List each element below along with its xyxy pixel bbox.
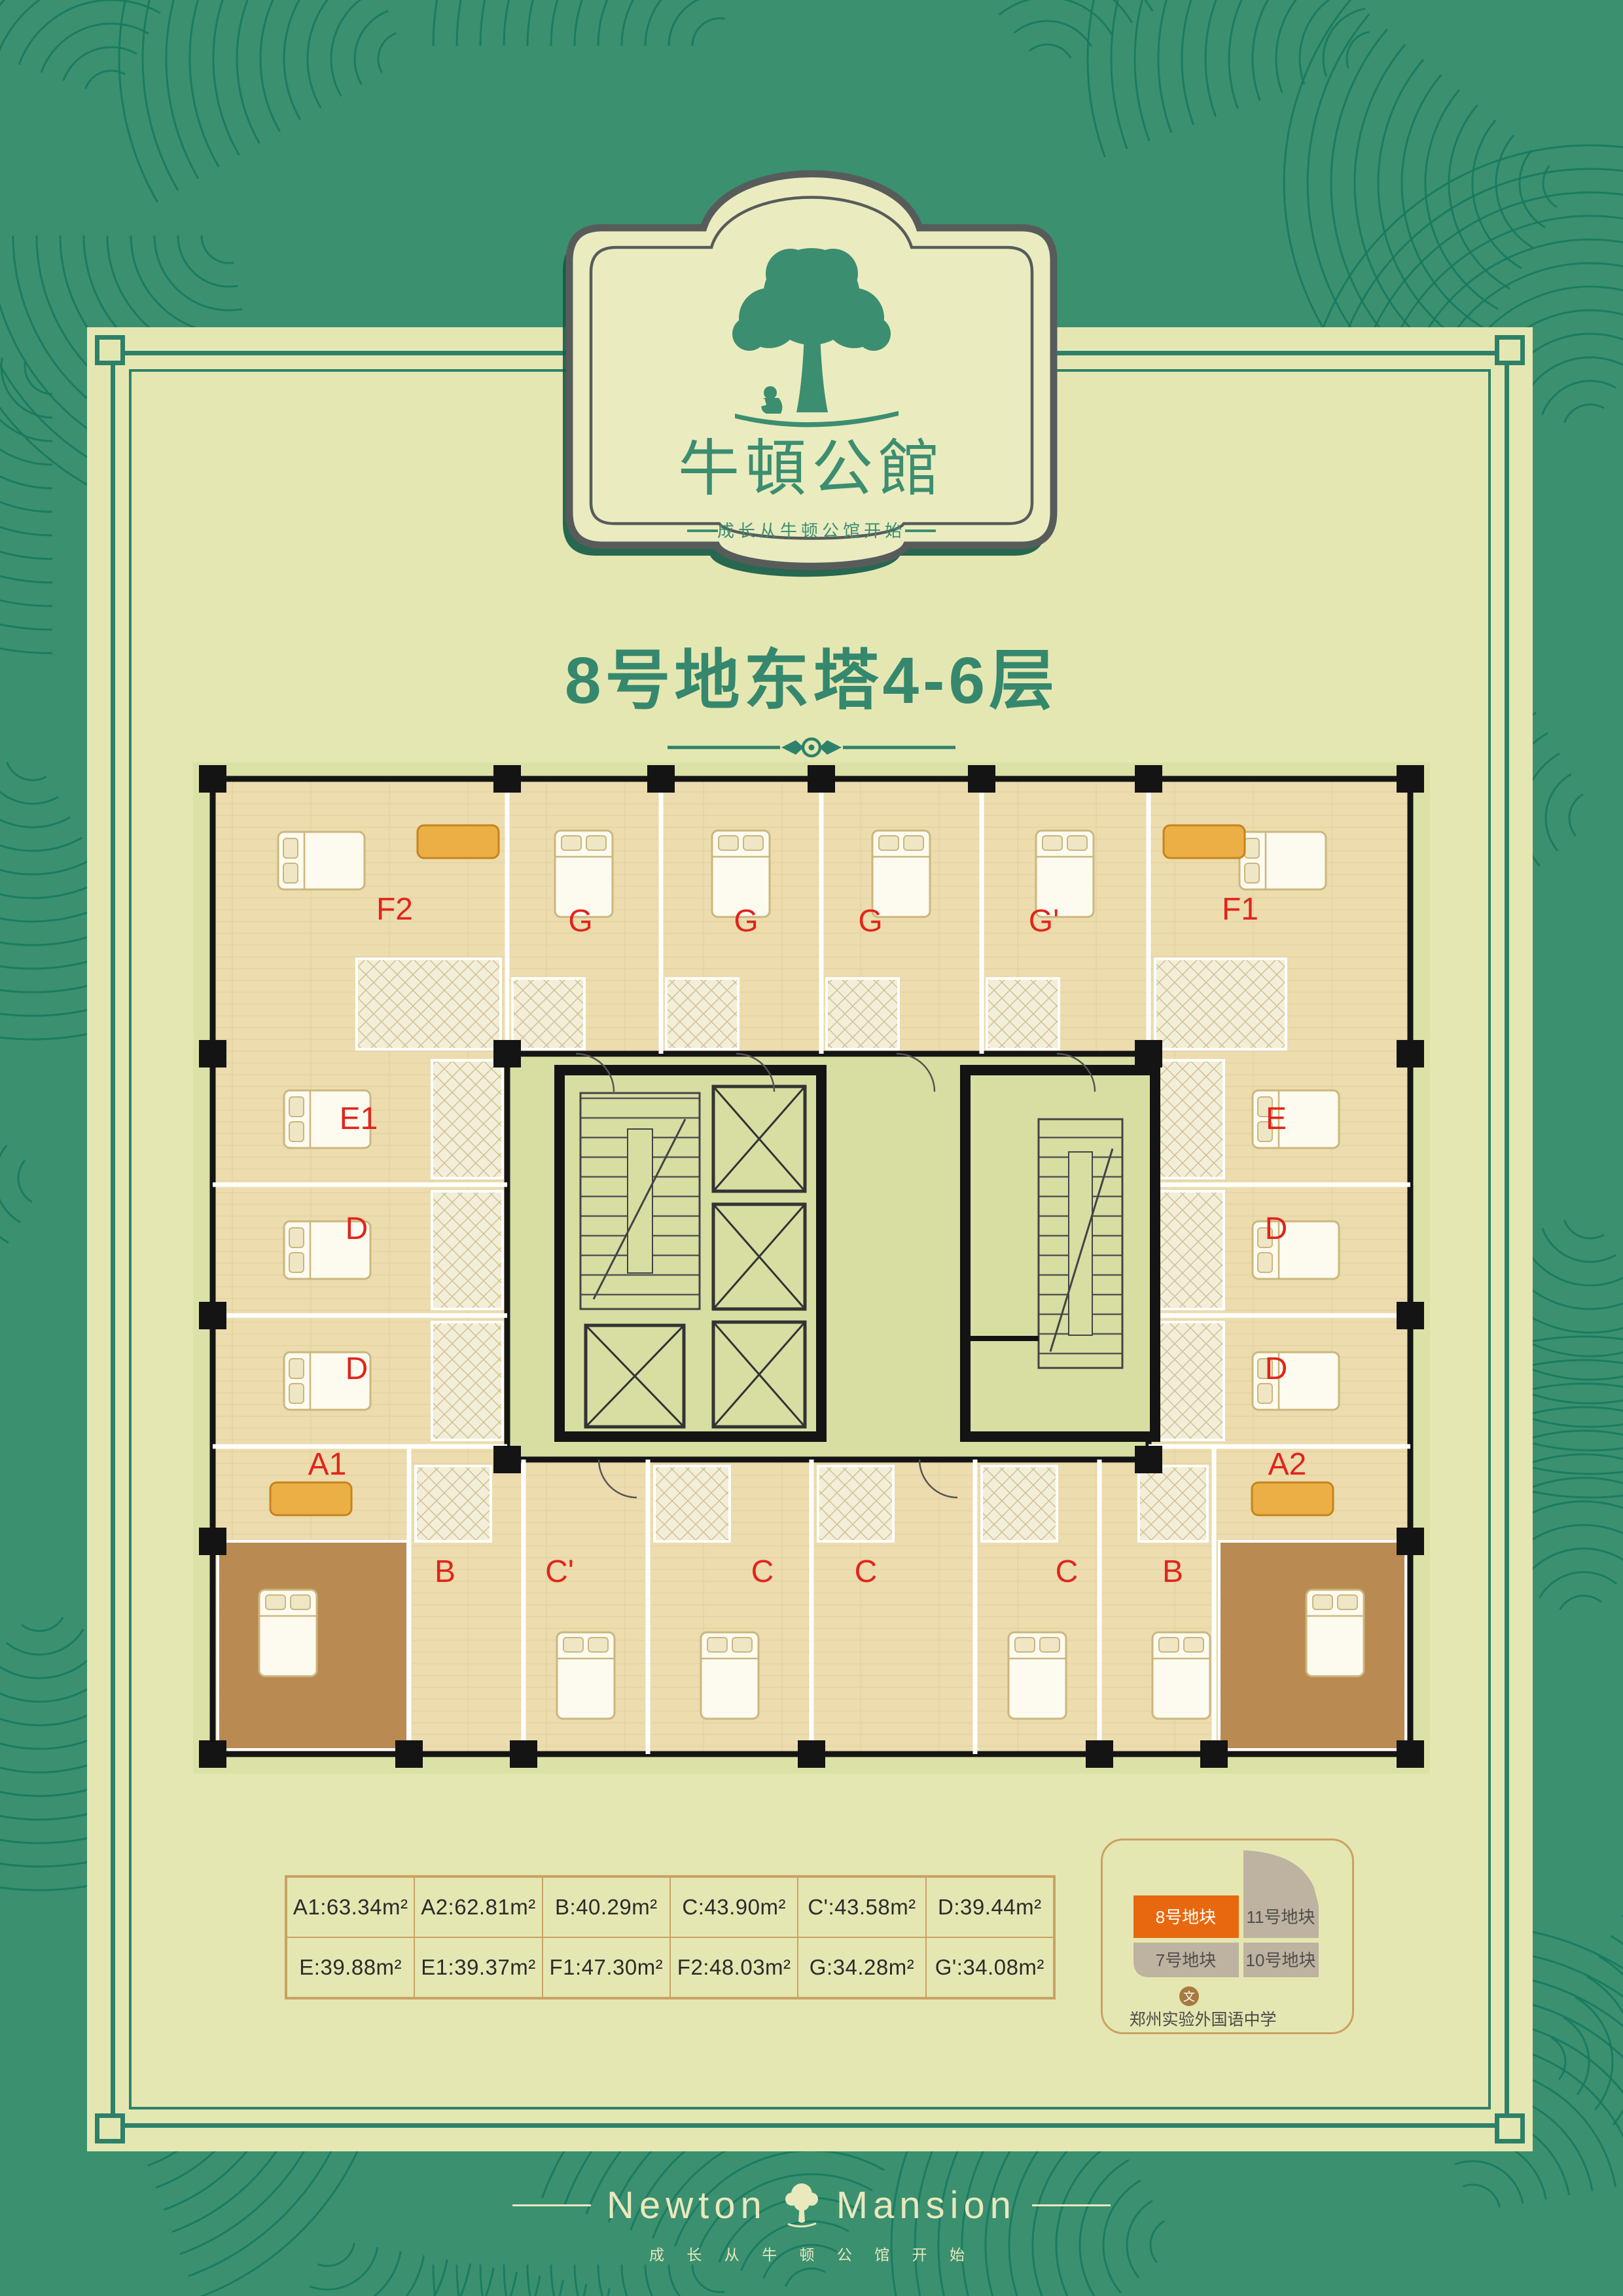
plot-10-label: 10号地块 <box>1246 1950 1316 1970</box>
structural-column <box>199 765 226 793</box>
unit-label: D <box>346 1211 368 1246</box>
unit-label: E <box>1266 1102 1287 1136</box>
footer-tagline: 成 长 从 牛 顿 公 馆 开 始 <box>649 2242 974 2265</box>
structural-column <box>199 1528 226 1555</box>
unit-label: D <box>1265 1211 1288 1246</box>
area-table-cell: F2:48.03m² <box>670 1937 798 1998</box>
school-label: 郑州实验外国语中学 <box>1129 2011 1276 2029</box>
unit-label: C <box>855 1554 878 1589</box>
area-table-cell: E:39.88m² <box>287 1937 414 1998</box>
structural-column <box>510 1740 537 1768</box>
unit-label: E1 <box>340 1102 378 1136</box>
unit-label: B <box>435 1554 455 1589</box>
footer: Newton Mansion 成 长 从 牛 顿 公 馆 开 始 <box>0 2179 1623 2265</box>
unit-label: C <box>1056 1554 1079 1589</box>
area-table-cell: D:39.44m² <box>926 1877 1054 1937</box>
plot-8-label: 8号地块 <box>1156 1907 1216 1927</box>
bed-icon <box>1306 1590 1364 1676</box>
unit-label: A1 <box>308 1447 347 1482</box>
structural-column <box>968 765 995 793</box>
leaf-fan <box>433 2265 770 2296</box>
page-title: 8号地东塔4-6层 <box>0 627 1623 722</box>
bed-icon <box>1240 832 1326 889</box>
brand-badge: 牛頓公館 成长从牛顿公馆开始 <box>540 149 1083 581</box>
school-icon-char: 文 <box>1183 1990 1195 2003</box>
area-table-cell: E1:39.37m² <box>414 1937 542 1998</box>
sofa-icon <box>1252 1482 1333 1515</box>
floor-plan: F2GGGG'F1E1EDDDDA1A2BC'CCCB <box>193 762 1430 1774</box>
structural-column <box>1397 765 1424 793</box>
unit-label: G <box>734 904 758 939</box>
bed-icon <box>1152 1632 1210 1719</box>
site-legend: 8号地块 11号地块 7号地块 10号地块 文 郑州实验外国语中学 <box>1101 1839 1354 2034</box>
structural-column <box>493 1446 521 1473</box>
structural-column <box>1397 1740 1424 1768</box>
unit-label: C' <box>545 1554 574 1589</box>
sofa-icon <box>270 1482 351 1515</box>
unit-label: F1 <box>1222 892 1258 927</box>
leaf-fan <box>0 317 52 653</box>
structural-column <box>1397 1040 1424 1067</box>
title-divider <box>668 733 955 762</box>
bed-icon <box>1008 1632 1066 1719</box>
footer-word-left: Newton <box>607 2183 767 2227</box>
brand-title: 牛頓公館 <box>678 434 945 503</box>
unit-label: F2 <box>376 892 413 927</box>
leaf-fan <box>863 0 1296 58</box>
area-table-cell: A2:62.81m² <box>414 1877 542 1937</box>
bed-icon <box>278 832 365 889</box>
stair-elevator-core-left <box>560 1070 821 1437</box>
structural-column <box>1086 1740 1113 1768</box>
plot-11-label: 11号地块 <box>1247 1907 1315 1927</box>
poster-page: 牛頓公館 成长从牛顿公馆开始 8号地东塔4-6层 <box>0 0 1623 2296</box>
structural-column <box>493 765 521 793</box>
leaf-fan <box>0 994 32 1427</box>
structural-column <box>199 1302 226 1329</box>
leaf-fan <box>1088 0 1370 157</box>
leaf-fan <box>433 0 770 46</box>
sofa-icon <box>418 825 499 858</box>
area-table-cell: C':43.58m² <box>798 1877 925 1937</box>
structural-column <box>1135 1446 1162 1473</box>
unit-label: G' <box>1029 904 1060 939</box>
area-table: A1:63.34m²A2:62.81m²B:40.29m²C:43.90m²C'… <box>285 1875 1056 2000</box>
structural-column <box>1135 765 1162 793</box>
bed-icon <box>557 1632 615 1719</box>
frame-corner-ornament <box>95 335 125 365</box>
bed-icon <box>701 1632 758 1719</box>
structural-column <box>199 1040 226 1067</box>
area-table-cell: G:34.28m² <box>798 1937 925 1998</box>
structural-column <box>647 765 675 793</box>
area-table-cell: C:43.90m² <box>670 1877 798 1937</box>
area-table-cell: B:40.29m² <box>543 1877 670 1937</box>
brand-tagline: 成长从牛顿公馆开始 <box>717 521 906 541</box>
leaf-fan <box>0 0 255 89</box>
sofa-icon <box>1164 825 1245 858</box>
leaf-fan <box>119 0 397 202</box>
structural-column <box>808 765 835 793</box>
footer-tree-icon <box>783 2179 821 2231</box>
unit-label: A2 <box>1268 1447 1307 1482</box>
frame-corner-ornament <box>1495 335 1525 365</box>
footer-word-right: Mansion <box>836 2183 1016 2227</box>
area-table-cell: G':34.08m² <box>926 1937 1054 1998</box>
unit-label: D <box>346 1352 368 1386</box>
structural-column <box>798 1740 825 1768</box>
unit-label: G <box>858 904 882 939</box>
stair-core-right <box>965 1070 1155 1437</box>
area-table-cell: A1:63.34m² <box>287 1877 414 1937</box>
unit-label: C <box>751 1554 774 1589</box>
structural-column <box>1200 1740 1228 1768</box>
structural-column <box>1397 1528 1424 1555</box>
plot-7-label: 7号地块 <box>1156 1950 1216 1970</box>
frame-corner-ornament <box>95 2113 125 2144</box>
structural-column <box>395 1740 423 1768</box>
structural-column <box>1135 1040 1162 1067</box>
structural-column <box>1397 1302 1424 1329</box>
structural-column <box>199 1740 226 1768</box>
footer-line-left <box>512 2204 591 2206</box>
unit-label: B <box>1162 1554 1183 1589</box>
bed-icon <box>259 1590 317 1676</box>
unit-label: D <box>1265 1352 1288 1386</box>
frame-corner-ornament <box>1495 2113 1525 2144</box>
unit-label: G <box>568 904 592 939</box>
structural-column <box>493 1040 521 1067</box>
footer-line-right <box>1032 2204 1111 2206</box>
area-table-cell: F1:47.30m² <box>543 1937 670 1998</box>
